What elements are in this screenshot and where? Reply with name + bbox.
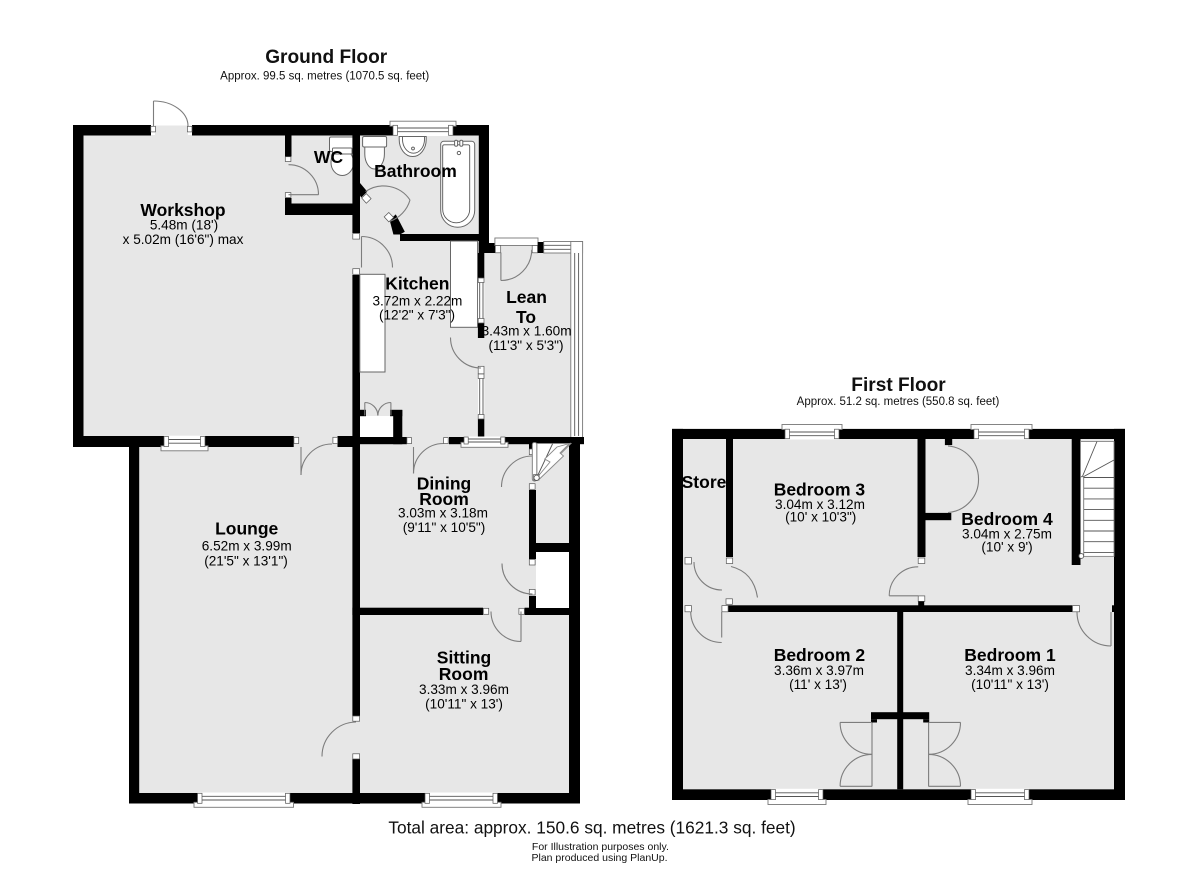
svg-text:5.48m (18'): 5.48m (18') bbox=[150, 218, 218, 233]
svg-text:3.36m x 3.97m: 3.36m x 3.97m bbox=[774, 663, 864, 678]
svg-text:(11' x 13'): (11' x 13') bbox=[789, 677, 847, 692]
svg-text:(10'11" x 13'): (10'11" x 13') bbox=[971, 677, 1049, 692]
svg-text:Approx. 51.2 sq. metres (550.8: Approx. 51.2 sq. metres (550.8 sq. feet) bbox=[797, 396, 1000, 408]
svg-text:(10'11" x 13'): (10'11" x 13') bbox=[425, 697, 503, 712]
svg-text:Total area: approx. 150.6 sq.: Total area: approx. 150.6 sq. metres (16… bbox=[388, 818, 795, 838]
svg-text:6.52m x 3.99m: 6.52m x 3.99m bbox=[202, 539, 292, 554]
svg-text:Lounge: Lounge bbox=[215, 519, 278, 539]
svg-text:3.72m x 2.22m: 3.72m x 2.22m bbox=[372, 294, 462, 309]
svg-text:Lean: Lean bbox=[506, 287, 547, 307]
svg-text:Plan produced using PlanUp.: Plan produced using PlanUp. bbox=[531, 852, 667, 864]
svg-text:(12'2" x 7'3"): (12'2" x 7'3") bbox=[379, 308, 455, 323]
svg-text:Approx. 99.5 sq. metres (1070.: Approx. 99.5 sq. metres (1070.5 sq. feet… bbox=[220, 71, 429, 83]
svg-text:Bedroom 2: Bedroom 2 bbox=[774, 645, 866, 665]
svg-text:3.43m x 1.60m: 3.43m x 1.60m bbox=[482, 324, 572, 339]
svg-text:3.03m x 3.18m: 3.03m x 3.18m bbox=[398, 506, 488, 521]
svg-text:Kitchen: Kitchen bbox=[385, 274, 449, 294]
svg-text:First Floor: First Floor bbox=[851, 375, 946, 396]
svg-text:Room: Room bbox=[439, 664, 489, 684]
svg-text:3.33m x 3.96m: 3.33m x 3.96m bbox=[419, 682, 509, 697]
svg-text:x 5.02m (16'6") max: x 5.02m (16'6") max bbox=[123, 232, 244, 247]
svg-text:3.34m x 3.96m: 3.34m x 3.96m bbox=[965, 663, 1055, 678]
svg-text:(9'11" x 10'5"): (9'11" x 10'5") bbox=[403, 520, 486, 535]
svg-text:Bedroom 1: Bedroom 1 bbox=[964, 645, 1056, 665]
svg-text:(10' x 10'3"): (10' x 10'3") bbox=[785, 510, 856, 525]
svg-text:(10' x 9'): (10' x 9') bbox=[981, 540, 1032, 555]
svg-text:WC: WC bbox=[314, 147, 344, 167]
svg-text:Bathroom: Bathroom bbox=[374, 161, 457, 181]
svg-text:Ground Floor: Ground Floor bbox=[265, 47, 388, 68]
svg-text:Store: Store bbox=[682, 472, 727, 492]
svg-text:(11'3" x 5'3"): (11'3" x 5'3") bbox=[488, 338, 563, 353]
svg-text:(21'5" x 13'1"): (21'5" x 13'1") bbox=[204, 554, 288, 569]
